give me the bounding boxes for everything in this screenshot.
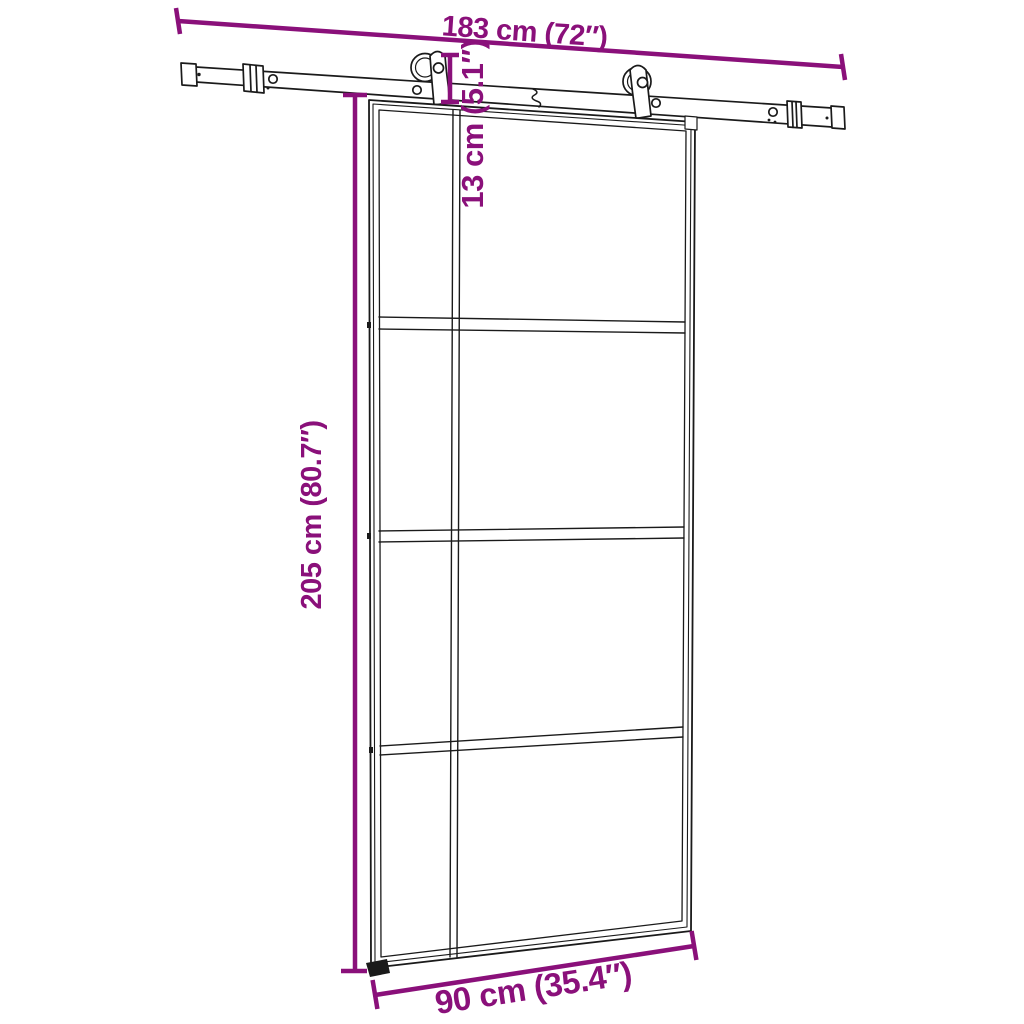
rail-connector-left <box>243 64 264 93</box>
rail-end-cap-left <box>181 63 197 86</box>
dimension-line-door-height <box>341 95 367 971</box>
rail-connector-right <box>787 101 802 128</box>
line-artwork <box>181 52 845 978</box>
sliding-door-dimension-diagram: 183 cm (72″) 13 cm (5.1″) 205 cm (80.7″)… <box>0 0 1024 1024</box>
door-top-corner-cap <box>685 116 697 130</box>
door-height-label: 205 cm (80.7″) <box>296 420 328 609</box>
door-width-label: 90 cm (35.4″) <box>432 954 634 1021</box>
floor-guide <box>366 959 390 977</box>
roller-hanger-left <box>430 52 450 106</box>
rail-end-cap-right <box>831 106 845 129</box>
diagram-svg: 183 cm (72″) 13 cm (5.1″) 205 cm (80.7″)… <box>0 0 1024 1024</box>
door-panel <box>369 100 697 968</box>
hanger-height-label: 13 cm (5.1″) <box>455 39 490 208</box>
